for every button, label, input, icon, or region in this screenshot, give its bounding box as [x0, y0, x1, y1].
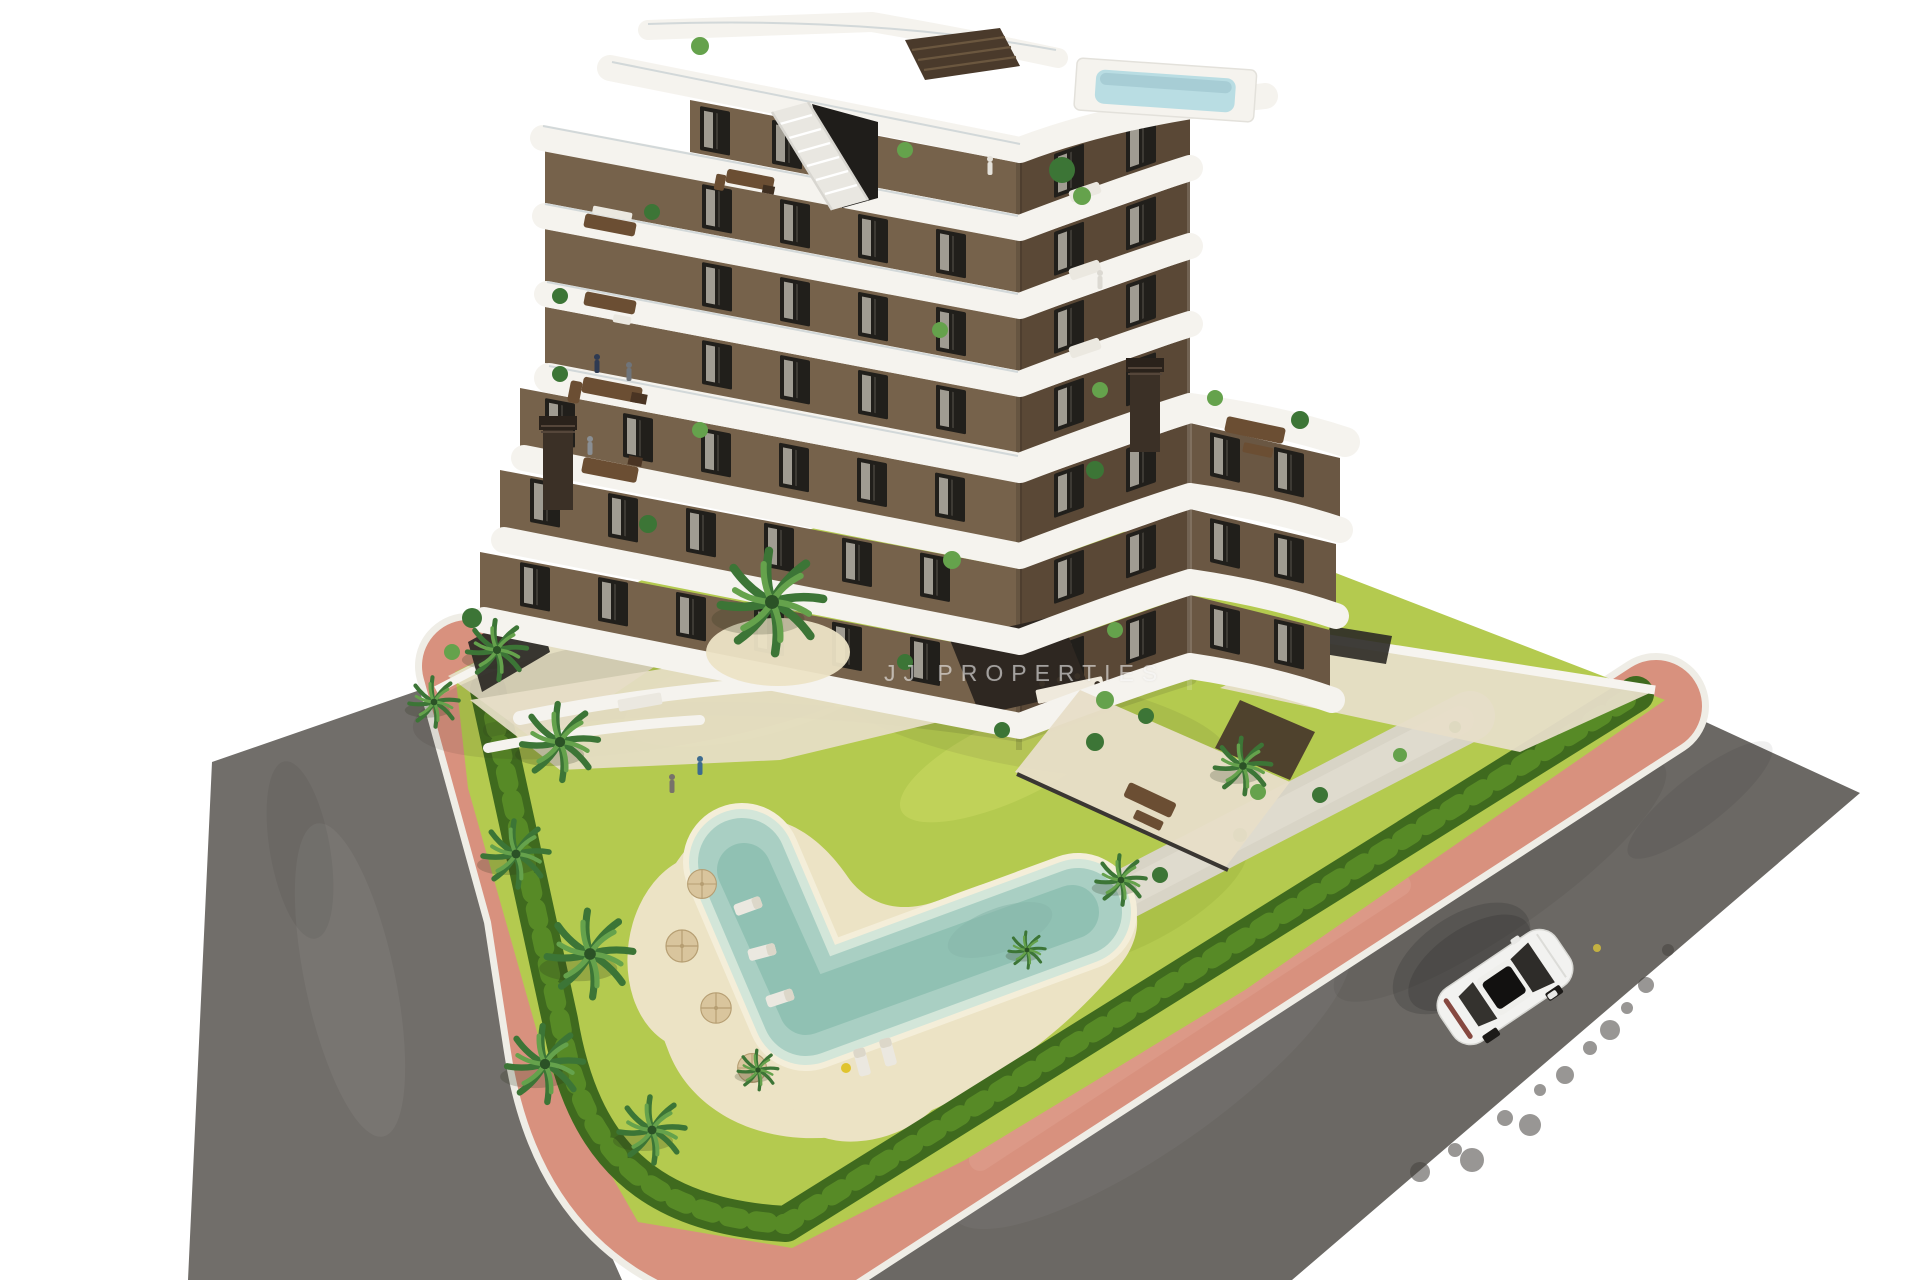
chimney-left	[539, 416, 577, 510]
pool-towel	[841, 1063, 851, 1073]
manhole-dot	[1593, 944, 1601, 952]
render-canvas: JJ PROPERTIES	[0, 0, 1920, 1280]
scene-svg	[0, 0, 1920, 1280]
chimney-right	[1126, 358, 1164, 452]
